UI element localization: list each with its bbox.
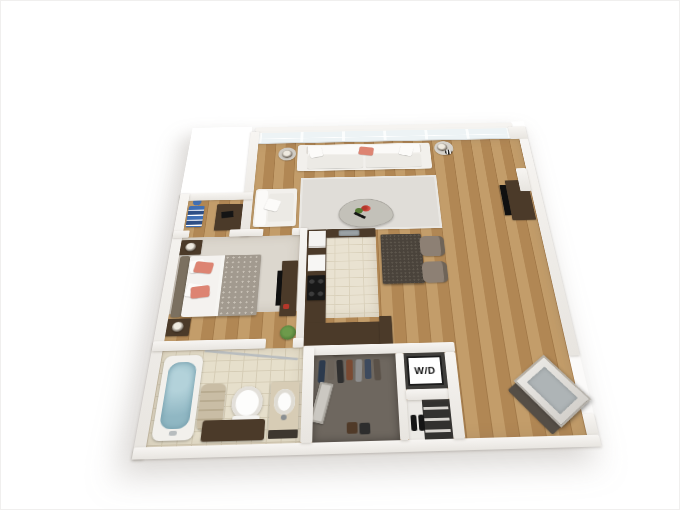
bed-duvet [214,254,261,316]
nook-blue-books [186,206,205,228]
washer-dryer-label: W/D [414,365,436,376]
bathroom-vanity [268,382,300,436]
bed-pillow-coral-2 [190,285,209,299]
sofa-pillow-white-right [399,145,414,156]
hanging-garment [346,360,353,381]
linen-closet-boots [410,415,417,431]
vanity-sink [273,389,295,415]
vanity-faucet [281,415,287,421]
bed-pillow-coral-1 [193,261,214,274]
hanging-garment [355,359,362,381]
apartment-plan: W/D [132,121,602,459]
kitchen-counter-return [379,316,393,344]
island-stool-1 [419,236,445,257]
wall-oven [308,254,326,271]
floorplan-render: W/D [0,0,680,510]
cooktop [307,275,325,300]
sofa [297,143,433,172]
wall-bedroom-top-b [229,229,263,237]
window-cap-right-wall [508,126,528,139]
hanging-garment [318,360,326,383]
closet-shoes [347,422,358,434]
hanging-garment [336,360,344,384]
wall-bedroom-top-a [172,230,189,237]
bathtub-faucet [169,431,178,436]
hanging-garment [373,359,381,381]
closet-hanging-clothes [318,359,393,387]
kitchen-sink [339,230,360,236]
wall-bathroom-closet [300,347,314,443]
washer-dryer-unit: W/D [406,356,444,386]
exterior-mask-top-left [181,127,253,194]
hanging-garment [364,359,371,379]
bathroom-storage-bench [200,419,265,442]
armchair [253,188,298,227]
island-stool-2 [421,261,448,283]
vanity-dark-mat [268,429,298,439]
wall-laundry-linen [406,388,449,400]
sofa-seat-right [366,153,422,167]
refrigerator [308,231,325,248]
hanging-garment [328,360,335,380]
kitchen-island [380,234,425,284]
bathtub-water [159,362,198,430]
red-decor-item [283,304,289,309]
wall-bedroom-bathroom-b [293,338,304,348]
sofa-pillow-coral [358,146,374,155]
black-vase-decor [445,150,452,155]
